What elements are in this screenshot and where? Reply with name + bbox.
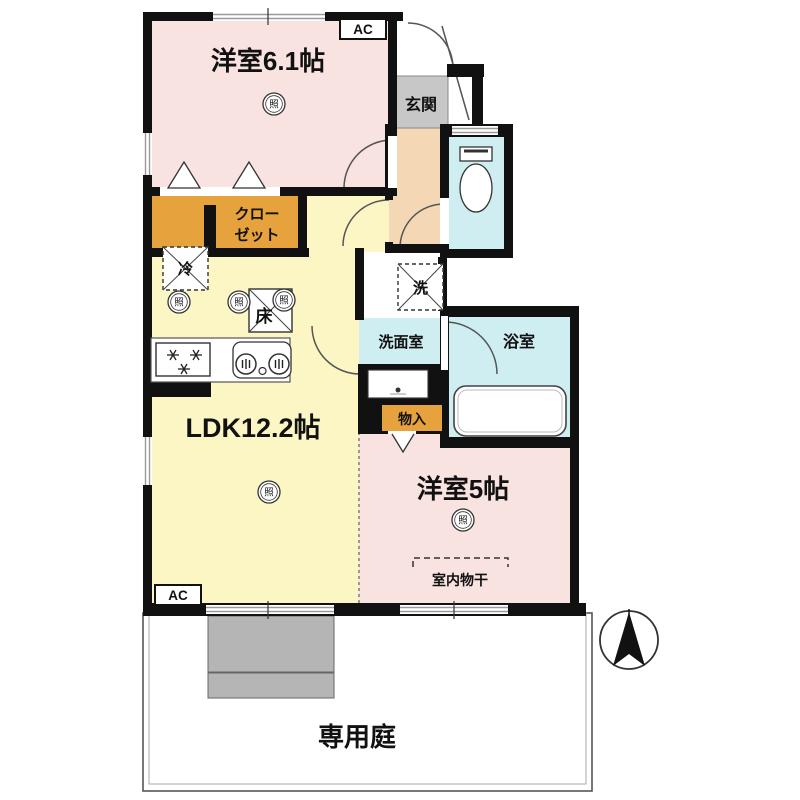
hallway-floor: [389, 124, 444, 254]
washing-machine-icon: 洗: [398, 264, 443, 310]
washer-label: 洗: [413, 279, 428, 297]
floor-plan-page: 冷 洗 照 照 照 照 照: [0, 0, 800, 800]
indoor-drying-label: 室内物干: [432, 572, 488, 588]
kitchen-counter: [151, 338, 291, 382]
ac-box-ldk: AC: [155, 585, 201, 605]
svg-text:照: 照: [234, 298, 244, 309]
kitchen-stove-icon: [233, 342, 291, 378]
room5-label: 洋室5帖: [417, 474, 509, 504]
floor-plan-drawing: 冷 洗 照 照 照 照 照: [0, 0, 800, 800]
ac-box-room6: AC: [340, 19, 386, 39]
svg-text:照: 照: [458, 516, 468, 527]
svg-text:照: 照: [279, 296, 289, 307]
closet-label-line2: ゼット: [234, 226, 279, 244]
garden-label: 専用庭: [318, 722, 396, 752]
refrigerator-icon: 冷: [163, 247, 208, 290]
room6-label: 洋室6.1帖: [211, 46, 325, 76]
light-icon-room5: 照: [452, 509, 474, 531]
svg-text:照: 照: [174, 298, 184, 309]
kitchen-sink-icon: [156, 343, 210, 376]
floor-storage-label: 床: [256, 306, 274, 326]
private-garden: [143, 613, 592, 791]
washbasin-icon: [368, 370, 428, 398]
ac-label-room6: AC: [353, 22, 373, 37]
closet-floor: [147, 190, 303, 252]
bathroom-label: 浴室: [503, 332, 535, 351]
window-toilet: [452, 126, 498, 135]
light-icon-room6: 照: [263, 93, 285, 115]
bathtub-icon: [454, 386, 566, 436]
svg-text:照: 照: [264, 488, 274, 499]
closet-label-line1: クロー: [234, 206, 279, 223]
refrigerator-label: 冷: [178, 260, 193, 278]
entrance-door-arc: [408, 23, 453, 68]
light-icon-ldk-2: 照: [228, 291, 250, 313]
svg-text:照: 照: [269, 100, 279, 111]
entrance-label: 玄関: [405, 95, 437, 114]
toilet-icon: [460, 147, 492, 212]
terrace: [208, 616, 334, 698]
ac-label-ldk: AC: [168, 588, 188, 603]
washroom-label: 洗面室: [378, 333, 423, 351]
ldk-label: LDK12.2帖: [185, 413, 320, 443]
storage-label: 物入: [398, 411, 426, 427]
compass-north-icon: [600, 609, 658, 669]
light-icon-ldk-1: 照: [168, 291, 190, 313]
light-icon-ldk-3: 照: [273, 289, 295, 311]
light-icon-ldk-main: 照: [258, 481, 280, 503]
window-left-ldk: [143, 437, 152, 485]
window-left-room6: [143, 133, 152, 175]
